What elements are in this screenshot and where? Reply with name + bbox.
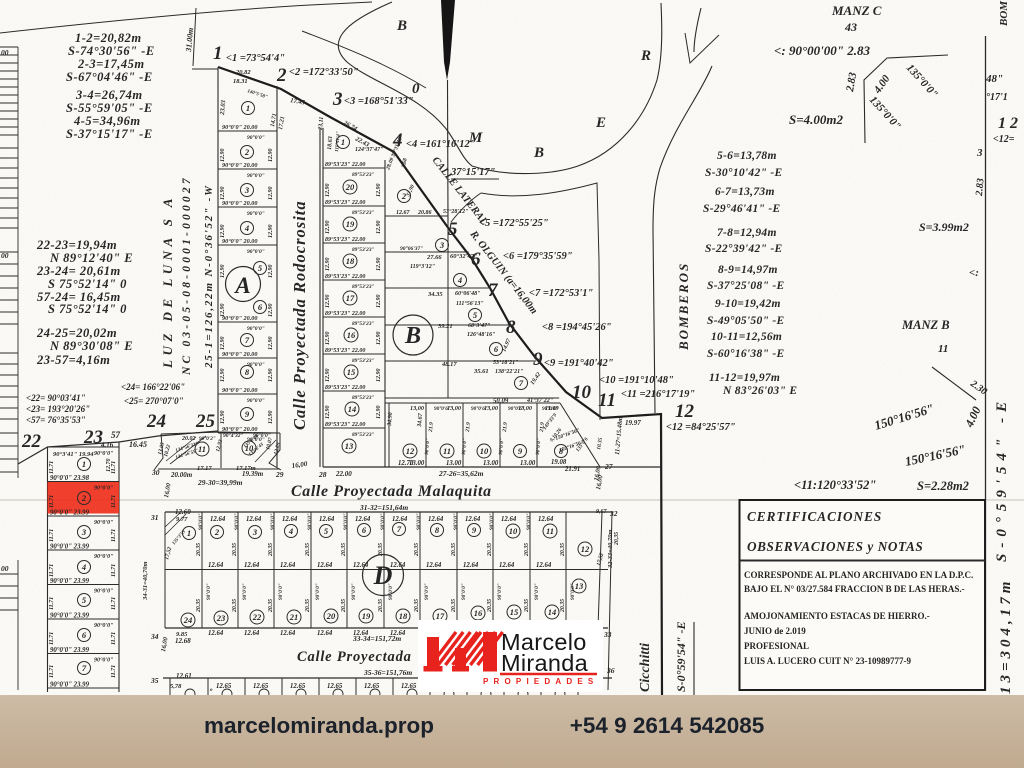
svg-text:N 83°26'03" E: N 83°26'03" E: [722, 385, 797, 397]
svg-text:90°0'0": 90°0'0": [277, 583, 284, 600]
svg-text:124°37'47": 124°37'47": [355, 146, 383, 153]
svg-text:90°0'0": 90°0'0": [525, 513, 532, 530]
svg-text:12.90: 12.90: [325, 332, 331, 346]
svg-text:13: 13: [345, 441, 354, 451]
svg-text:90°0'0": 90°0'0": [533, 583, 540, 600]
svg-text:90°0'0" 20.00: 90°0'0" 20.00: [222, 162, 257, 169]
svg-text:<6 =179°35'59": <6 =179°35'59": [503, 251, 573, 262]
svg-text:20.35: 20.35: [414, 599, 420, 613]
svg-text:12.65: 12.65: [253, 683, 269, 690]
svg-text:12.90: 12.90: [220, 411, 226, 425]
svg-text:90°0'0": 90°0'0": [247, 134, 265, 141]
svg-text:90°0'0": 90°0'0": [247, 248, 265, 255]
svg-text:90°0'0": 90°0'0": [94, 485, 113, 492]
svg-text:90°0'0" 23.99: 90°0'0" 23.99: [50, 647, 90, 654]
svg-text:20.35: 20.35: [305, 599, 311, 613]
svg-text:90°0'0": 90°0'0": [460, 438, 468, 455]
svg-text:2.83: 2.83: [974, 178, 987, 197]
svg-text:89°53'23" 22.00: 89°53'23" 22.00: [325, 347, 365, 354]
svg-text:11.71: 11.71: [49, 597, 55, 610]
svg-text:34: 34: [150, 632, 159, 641]
svg-text:20.35: 20.35: [196, 543, 202, 557]
svg-text:12.90: 12.90: [220, 369, 226, 383]
svg-text:138°22'21": 138°22'21": [495, 368, 523, 375]
svg-text:90°0'0": 90°0'0": [342, 513, 349, 530]
svg-text:3: 3: [439, 240, 445, 250]
svg-text:Calle Proyectada Malaquita: Calle Proyectada Malaquita: [291, 483, 492, 500]
svg-text:20: 20: [326, 611, 336, 621]
svg-text:16: 16: [474, 608, 483, 618]
svg-text:89°53'23": 89°53'23": [352, 431, 374, 438]
svg-text:12.90: 12.90: [325, 295, 331, 309]
svg-text:14: 14: [548, 607, 557, 617]
svg-text:BOMBEROS: BOMBEROS: [676, 262, 691, 351]
svg-text:S 75°52'14" 0: S 75°52'14" 0: [48, 277, 127, 291]
svg-text:Calle Proyectada: Calle Proyectada: [297, 649, 412, 665]
svg-text:17.17: 17.17: [197, 465, 212, 472]
svg-text:12.90: 12.90: [376, 369, 382, 383]
svg-text:13.00: 13.00: [483, 460, 499, 467]
svg-text:<57= 76°35'53": <57= 76°35'53": [26, 415, 86, 425]
svg-text:89°53'23": 89°53'23": [352, 394, 374, 401]
svg-text:12.65: 12.65: [364, 683, 380, 690]
svg-text:12.64: 12.64: [355, 516, 371, 523]
svg-text:12.90: 12.90: [325, 258, 331, 272]
svg-text:29: 29: [275, 470, 284, 479]
svg-text:18.31: 18.31: [233, 78, 248, 85]
svg-text:11.71: 11.71: [111, 529, 117, 542]
svg-text:23.03: 23.03: [219, 99, 227, 116]
svg-text:90°0'0" 23.98: 90°0'0" 23.98: [50, 475, 90, 482]
svg-text:23-24= 20,61m: 23-24= 20,61m: [36, 264, 121, 278]
svg-text:20.35: 20.35: [414, 543, 420, 557]
svg-text:53°28'12": 53°28'12": [443, 208, 468, 215]
svg-text:12.90: 12.90: [268, 304, 274, 318]
svg-text:12.64: 12.64: [208, 562, 224, 569]
svg-text:S=3.99m2: S=3.99m2: [919, 220, 969, 234]
svg-text:00: 00: [1, 48, 9, 57]
svg-text:31: 31: [150, 513, 159, 522]
svg-text:11.71: 11.71: [111, 597, 117, 610]
svg-text:8: 8: [506, 317, 516, 338]
svg-text:1: 1: [82, 459, 86, 469]
svg-text:S-0°59'54" -E: S-0°59'54" -E: [674, 622, 688, 692]
svg-text:12.90: 12.90: [220, 304, 226, 318]
svg-text:20.35: 20.35: [378, 599, 384, 613]
svg-text:68°3'47": 68°3'47": [468, 322, 490, 329]
svg-text:35: 35: [150, 676, 159, 685]
svg-text:90°0'0": 90°0'0": [452, 513, 459, 530]
svg-text:89°53'23" 22.00: 89°53'23" 22.00: [325, 384, 365, 391]
svg-text:20.35: 20.35: [341, 599, 347, 613]
svg-text:S=2.28m2: S=2.28m2: [917, 479, 969, 493]
svg-text:N 89°30'08" E: N 89°30'08" E: [49, 339, 133, 353]
svg-text:90°0'0": 90°0'0": [247, 361, 265, 368]
svg-text:119°3'12": 119°3'12": [410, 263, 435, 270]
svg-text:20.35: 20.35: [487, 599, 493, 613]
svg-text:BOM: BOM: [998, 0, 1010, 27]
svg-text:20.35: 20.35: [268, 599, 274, 613]
svg-text:4-5=34,96m: 4-5=34,96m: [73, 114, 141, 128]
svg-text:90°0'0" 20.00: 90°0'0" 20.00: [222, 315, 257, 322]
svg-text:M: M: [468, 130, 483, 146]
svg-text:3: 3: [244, 185, 250, 195]
svg-text:89°53'23": 89°53'23": [352, 320, 374, 327]
svg-text:20.02: 20.02: [181, 436, 196, 442]
svg-text:19: 19: [362, 611, 371, 621]
svg-text:<2 =172°33'50": <2 =172°33'50": [289, 67, 359, 78]
svg-text:S-37°25'08" -E: S-37°25'08" -E: [707, 280, 785, 292]
svg-text:89°53'23": 89°53'23": [352, 283, 374, 290]
svg-text:<8 =194°45'26": <8 =194°45'26": [542, 322, 612, 333]
svg-text:MANZ C: MANZ C: [831, 3, 882, 18]
svg-text:11-12=19,97m: 11-12=19,97m: [709, 372, 780, 384]
svg-text:29-30=39,99m: 29-30=39,99m: [197, 478, 243, 487]
svg-text:<23= 193°20'26": <23= 193°20'26": [26, 404, 90, 414]
svg-text:S-67°04'46" -E: S-67°04'46" -E: [66, 70, 153, 84]
svg-text:60°32'47": 60°32'47": [450, 253, 478, 260]
svg-text:22-23=19,94m: 22-23=19,94m: [36, 238, 117, 252]
svg-text:20.35: 20.35: [560, 599, 566, 613]
svg-text:2-3=17,45m: 2-3=17,45m: [77, 57, 145, 71]
svg-text:90°0'0" 23.99: 90°0'0" 23.99: [50, 613, 90, 620]
svg-text:12.90: 12.90: [268, 149, 274, 163]
svg-text:89°53'23" 22.00: 89°53'23" 22.00: [325, 199, 365, 206]
svg-text:90°0'0": 90°0'0": [94, 657, 113, 664]
svg-text:1: 1: [187, 528, 191, 538]
svg-text:PROPIEDADES: PROPIEDADES: [483, 677, 598, 686]
svg-text:4: 4: [81, 562, 86, 572]
svg-text:57: 57: [111, 430, 121, 440]
svg-text:20.35: 20.35: [341, 543, 347, 557]
svg-text:12.90: 12.90: [376, 406, 382, 420]
svg-text:20.35: 20.35: [305, 543, 311, 557]
svg-text:27-26=35,62m: 27-26=35,62m: [438, 469, 484, 478]
svg-text:12.64: 12.64: [428, 516, 444, 523]
svg-text:90°0'2": 90°0'2": [199, 435, 216, 442]
svg-text:23-57=4,16m: 23-57=4,16m: [36, 353, 110, 367]
svg-text:21.91: 21.91: [564, 466, 580, 473]
svg-text:20.35: 20.35: [451, 543, 457, 557]
svg-text:21.9: 21.9: [465, 422, 472, 433]
svg-text:11.71: 11.71: [111, 665, 117, 678]
svg-text:16.45: 16.45: [129, 440, 147, 449]
svg-text:21.9: 21.9: [502, 422, 509, 433]
svg-text:12.64: 12.64: [465, 516, 481, 523]
svg-text:12.64: 12.64: [501, 516, 517, 523]
svg-text:<: 90°00'00" 2.83: <: 90°00'00" 2.83: [774, 43, 871, 58]
svg-text:10: 10: [480, 446, 489, 456]
svg-text:<12=: <12=: [993, 134, 1015, 145]
svg-text:90°0'0": 90°0'0": [94, 622, 113, 629]
svg-text:90°3'41" 19.94: 90°3'41" 19.94: [53, 451, 94, 458]
svg-text:R: R: [640, 48, 651, 64]
svg-text:11: 11: [598, 390, 616, 411]
svg-text:12.64: 12.64: [210, 516, 226, 523]
svg-text:AMOJONAMIENTO ESTACAS DE HIERR: AMOJONAMIENTO ESTACAS DE HIERRO.-: [744, 611, 930, 621]
svg-text:12.90: 12.90: [376, 184, 382, 198]
svg-text:90°0'0" 20.00: 90°0'0" 20.00: [222, 351, 257, 358]
svg-text:60°06'48": 60°06'48": [455, 290, 480, 297]
svg-text:<7 =172°53'1": <7 =172°53'1": [529, 288, 593, 299]
svg-text:90°4'32": 90°4'32": [223, 432, 244, 439]
svg-text:90°0'0" 20.00: 90°0'0" 20.00: [222, 200, 257, 207]
svg-text:<3 =168°51'33": <3 =168°51'33": [344, 96, 414, 107]
svg-text:20.82: 20.82: [235, 69, 251, 76]
svg-text:20.35: 20.35: [487, 543, 493, 557]
svg-text:20.35: 20.35: [232, 543, 238, 557]
svg-text:4: 4: [288, 526, 293, 536]
svg-text:20.35: 20.35: [196, 599, 202, 613]
svg-text:90°0'0": 90°0'0": [350, 583, 357, 600]
svg-text:1 2: 1 2: [998, 115, 1018, 132]
svg-text:90°0'0": 90°0'0": [197, 513, 204, 530]
svg-text:S-55°59'05" -E: S-55°59'05" -E: [66, 101, 153, 115]
svg-text:22: 22: [252, 612, 262, 622]
svg-text:21.9: 21.9: [428, 422, 435, 433]
svg-text:20.35: 20.35: [560, 543, 566, 557]
svg-text:37°15'17": 37°15'17": [450, 167, 496, 178]
svg-text:E: E: [595, 115, 606, 131]
svg-text:B: B: [404, 323, 421, 349]
svg-text:Cicchitti: Cicchitti: [638, 643, 653, 692]
svg-text:S=4.00m2: S=4.00m2: [789, 112, 843, 127]
svg-text:6-7=13,73m: 6-7=13,73m: [715, 186, 775, 198]
svg-text:19.08: 19.08: [551, 459, 567, 466]
svg-text:90°06'37": 90°06'37": [400, 245, 423, 252]
svg-text:20.00m: 20.00m: [170, 471, 193, 479]
svg-text:89°53'23" 22.00: 89°53'23" 22.00: [325, 421, 365, 428]
svg-text:90°0'0": 90°0'0": [94, 553, 113, 560]
svg-text:90°0'0": 90°0'0": [233, 513, 240, 530]
svg-text:24: 24: [146, 411, 166, 432]
svg-text:3: 3: [976, 147, 983, 159]
svg-text:12: 12: [581, 544, 590, 554]
svg-text:<:: <:: [969, 267, 979, 279]
svg-text:12.90: 12.90: [376, 295, 382, 309]
svg-text:11.71: 11.71: [49, 529, 55, 542]
svg-text:<1 =73°54'4": <1 =73°54'4": [226, 53, 285, 64]
svg-text:12.68: 12.68: [175, 637, 191, 645]
svg-text:35.61: 35.61: [473, 368, 489, 375]
svg-text:90°0'0" 20.00: 90°0'0" 20.00: [222, 124, 257, 131]
svg-text:12.90: 12.90: [268, 411, 274, 425]
svg-text:12.90: 12.90: [325, 369, 331, 383]
svg-text:8-9=14,97m: 8-9=14,97m: [718, 264, 778, 276]
svg-text:11.71: 11.71: [49, 665, 55, 678]
svg-text:13.00: 13.00: [446, 460, 462, 467]
svg-text:111°56'13": 111°56'13": [456, 300, 484, 307]
svg-text:<11 =216°17'19": <11 =216°17'19": [621, 389, 695, 400]
svg-text:12.64: 12.64: [317, 562, 333, 569]
svg-text:39.21: 39.21: [437, 323, 453, 330]
svg-text:22.00: 22.00: [335, 470, 352, 478]
svg-text:13,00: 13,00: [518, 405, 532, 412]
svg-text:11.09: 11.09: [545, 405, 559, 412]
svg-text:14: 14: [348, 404, 357, 414]
svg-text:11.71: 11.71: [49, 564, 55, 577]
svg-text:15: 15: [347, 367, 356, 377]
svg-text:12.61: 12.61: [176, 672, 192, 680]
svg-text:90°0'0": 90°0'0": [534, 438, 542, 455]
svg-text:12.60: 12.60: [175, 508, 191, 516]
svg-text:16: 16: [347, 330, 356, 340]
svg-text:OBSERVACIONES y NOTAS: OBSERVACIONES y NOTAS: [747, 539, 923, 554]
svg-text:18.63: 18.63: [327, 136, 334, 150]
svg-text:1: 1: [341, 137, 345, 147]
svg-text:12.90: 12.90: [268, 337, 274, 351]
svg-text:12.90: 12.90: [376, 221, 382, 235]
svg-text:12.64: 12.64: [244, 562, 260, 569]
svg-text:7: 7: [488, 280, 499, 301]
svg-text:S-60°16'38" -E: S-60°16'38" -E: [707, 348, 785, 360]
svg-text:13.00: 13.00: [520, 460, 536, 467]
svg-text:9-10=19,42m: 9-10=19,42m: [715, 298, 781, 310]
svg-text:BAJO EL N° 03/27.584 FRACCION: BAJO EL N° 03/27.584 FRACCION B DE LAS H…: [744, 584, 965, 594]
svg-text:90°0'0": 90°0'0": [423, 438, 431, 455]
svg-text:32: 32: [609, 509, 618, 518]
svg-text:11.71: 11.71: [111, 495, 117, 508]
svg-text:12.64: 12.64: [282, 516, 298, 523]
svg-text:21: 21: [289, 612, 299, 622]
svg-text:<12 =84°25'57": <12 =84°25'57": [666, 422, 736, 433]
svg-text:3: 3: [332, 89, 343, 110]
svg-text:12.64: 12.64: [319, 516, 335, 523]
svg-text:89°53'23": 89°53'23": [352, 246, 374, 253]
svg-text:33: 33: [603, 630, 612, 639]
svg-text:12.64: 12.64: [538, 516, 554, 523]
svg-text:90°0'0": 90°0'0": [94, 588, 113, 595]
svg-text:S 75°52'14" 0: S 75°52'14" 0: [48, 302, 127, 316]
svg-text:27: 27: [604, 462, 613, 471]
svg-text:12.64: 12.64: [280, 630, 296, 637]
svg-text:11.71: 11.71: [111, 632, 117, 645]
svg-text:D: D: [373, 561, 393, 590]
svg-text:13=304,17m: 13=304,17m: [998, 578, 1014, 694]
svg-text:90°0'0": 90°0'0": [497, 438, 505, 455]
svg-text:15: 15: [510, 607, 519, 617]
svg-text:JUNIO de 2.019: JUNIO de 2.019: [744, 626, 806, 636]
svg-text:PROFESIONAL: PROFESIONAL: [744, 641, 809, 651]
svg-text:5: 5: [448, 219, 458, 240]
svg-text:B: B: [396, 18, 407, 34]
svg-text:25-1=126,22m N-0°36'52" -W: 25-1=126,22m N-0°36'52" -W: [203, 184, 215, 369]
svg-text:0: 0: [412, 81, 420, 97]
svg-text:12.65: 12.65: [216, 683, 232, 690]
svg-text:20.86: 20.86: [417, 210, 432, 216]
svg-text:89°53'23" 22.00: 89°53'23" 22.00: [325, 273, 365, 280]
svg-text:24-25=20,02m: 24-25=20,02m: [36, 326, 117, 340]
svg-text:A: A: [233, 273, 250, 298]
svg-text:Miranda: Miranda: [501, 650, 589, 676]
svg-text:2: 2: [214, 527, 220, 537]
svg-text:9,67: 9,67: [596, 509, 608, 515]
svg-text:89°53'23" 22.00: 89°53'23" 22.00: [325, 236, 365, 243]
svg-text:90°0'0" 20.00: 90°0'0" 20.00: [222, 387, 257, 394]
svg-text:00: 00: [1, 564, 9, 573]
svg-text:4: 4: [244, 223, 249, 233]
svg-text:50.09: 50.09: [493, 398, 509, 405]
svg-text:12.65: 12.65: [327, 683, 343, 690]
svg-text:34.90: 34.90: [387, 412, 394, 427]
svg-text:17: 17: [346, 293, 355, 303]
svg-text:°17'1: °17'1: [986, 92, 1008, 103]
svg-text:33-34=151,72m: 33-34=151,72m: [352, 634, 401, 643]
svg-text:90°0'0": 90°0'0": [496, 583, 503, 600]
svg-text:12.64: 12.64: [499, 562, 515, 569]
svg-text:S-30°10'42" -E: S-30°10'42" -E: [705, 167, 783, 179]
svg-text:12.90: 12.90: [268, 265, 274, 279]
svg-text:12.90: 12.90: [325, 221, 331, 235]
svg-text:12.90: 12.90: [220, 187, 226, 201]
svg-text:23,11: 23,11: [318, 117, 325, 132]
svg-text:+54 9 2614 542085: +54 9 2614 542085: [570, 713, 765, 738]
svg-text:24: 24: [183, 615, 193, 625]
svg-text:18: 18: [399, 611, 408, 621]
svg-text:90°0'0": 90°0'0": [241, 583, 248, 600]
svg-text:11.71: 11.71: [49, 495, 55, 508]
svg-text:B: B: [533, 145, 544, 161]
svg-text:1: 1: [213, 43, 223, 64]
svg-text:LUZ DE LUNA S A: LUZ DE LUNA S A: [160, 194, 175, 369]
svg-text:90°0'0" 23.99: 90°0'0" 23.99: [50, 578, 90, 585]
svg-text:12.90: 12.90: [268, 369, 274, 383]
svg-text:9.85: 9.85: [176, 631, 188, 638]
svg-text:19.39m: 19.39m: [242, 470, 264, 478]
svg-text:89°53'23": 89°53'23": [352, 171, 374, 178]
svg-text:3-4=26,74m: 3-4=26,74m: [75, 88, 143, 102]
svg-text:12.67: 12.67: [396, 210, 411, 216]
svg-text:1-2=20,82m: 1-2=20,82m: [75, 31, 142, 45]
svg-text:2: 2: [81, 493, 87, 503]
svg-text:90°0'0": 90°0'0": [247, 172, 265, 179]
svg-text:30: 30: [151, 468, 160, 477]
svg-text:10-11=12,56m: 10-11=12,56m: [711, 331, 782, 343]
svg-text:marcelomiranda.prop: marcelomiranda.prop: [204, 713, 434, 738]
svg-text:34-31=40,70m: 34-31=40,70m: [142, 561, 149, 601]
svg-text:20.35: 20.35: [524, 599, 530, 613]
svg-text:12.90: 12.90: [376, 332, 382, 346]
svg-text:S-49°05'50" -E: S-49°05'50" -E: [707, 315, 785, 327]
svg-text:4: 4: [457, 275, 462, 285]
svg-text:23: 23: [216, 613, 226, 623]
svg-text:CERTIFICACIONES: CERTIFICACIONES: [747, 509, 882, 524]
svg-text:89°53'23" 22.00: 89°53'23" 22.00: [325, 310, 365, 317]
svg-text:90°0'0" 23.99: 90°0'0" 23.99: [50, 544, 90, 551]
svg-text:12.64: 12.64: [426, 562, 442, 569]
svg-text:90°0'0" 23.99: 90°0'0" 23.99: [50, 682, 90, 689]
svg-text:48.17: 48.17: [441, 361, 457, 368]
svg-text:11: 11: [546, 526, 554, 536]
svg-text:90°0'0": 90°0'0": [379, 513, 386, 530]
svg-text:<9 =191°40'42": <9 =191°40'42": [544, 358, 614, 369]
svg-text:32-33=40,70m: 32-33=40,70m: [607, 529, 614, 569]
svg-text:2: 2: [276, 65, 287, 86]
svg-text:12.90: 12.90: [268, 225, 274, 239]
svg-text:48": 48": [985, 73, 1003, 85]
svg-text:89°53'23" 22.00: 89°53'23" 22.00: [325, 161, 365, 168]
svg-text:11.71: 11.71: [49, 632, 55, 645]
svg-text:00: 00: [1, 251, 9, 260]
svg-text:12: 12: [406, 446, 415, 456]
svg-text:NC 03-05-08-0001-000027: NC 03-05-08-0001-000027: [181, 175, 193, 376]
svg-text:11.71: 11.71: [111, 564, 117, 577]
svg-text:27.66: 27.66: [426, 254, 442, 261]
svg-text:20.35: 20.35: [232, 599, 238, 613]
svg-text:90°0'0": 90°0'0": [94, 519, 113, 526]
svg-text:90°0'0": 90°0'0": [247, 210, 265, 217]
svg-text:7-8=12,94m: 7-8=12,94m: [717, 227, 777, 239]
